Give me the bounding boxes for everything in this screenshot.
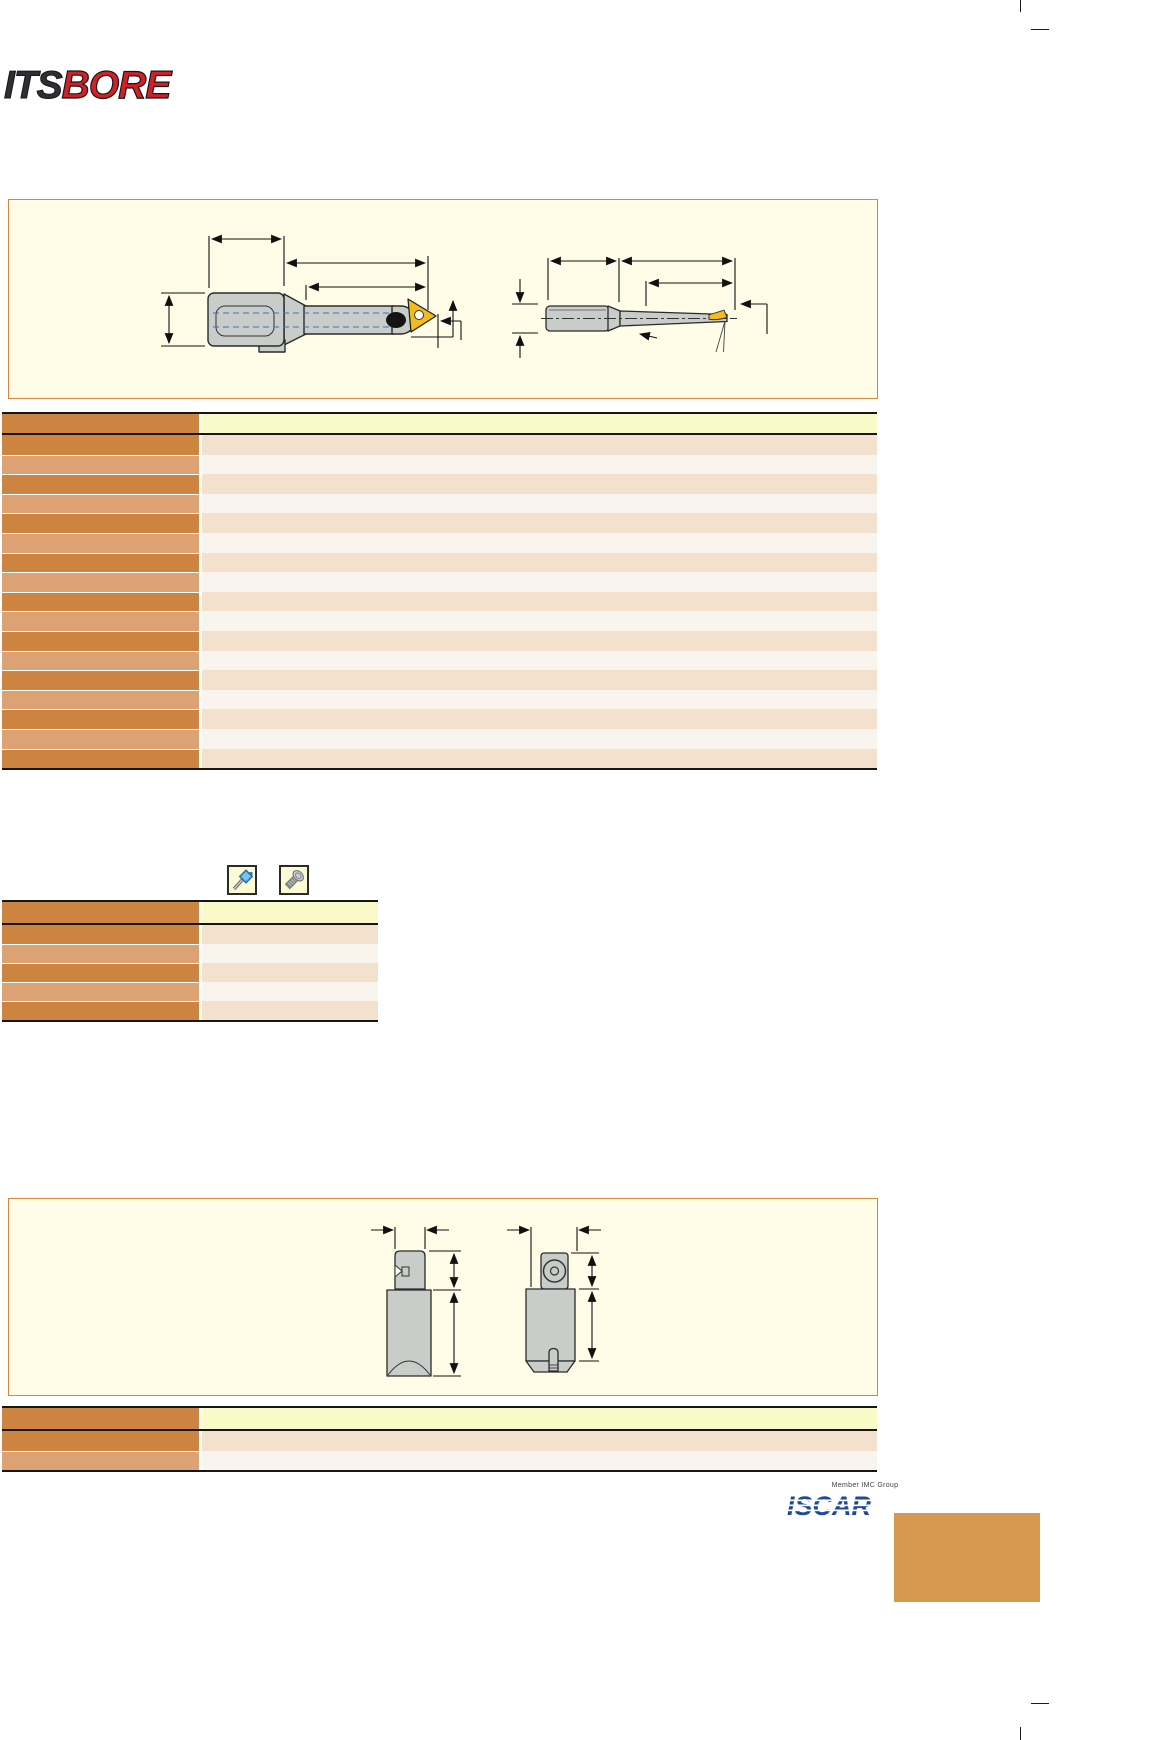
row-label-cell [2, 749, 199, 769]
iscar-logo: ISCAR [786, 1491, 890, 1526]
catalog-page: ITSBORE [0, 0, 1164, 1740]
cartridge-dimension-diagram-box [8, 1198, 878, 1396]
table-row [2, 670, 877, 690]
torx-key-icon [227, 865, 257, 895]
row-label-cell [2, 1451, 199, 1471]
cartridge-pocket-detail [402, 1267, 409, 1276]
header-cells [202, 414, 877, 433]
table-row [2, 709, 877, 729]
table-bottom-rule [2, 768, 877, 770]
row-label-cell [2, 1001, 199, 1020]
row-value-cell [202, 925, 378, 944]
row-label-cell [2, 709, 199, 729]
table-bottom-rule [2, 1020, 378, 1022]
table-row [2, 1431, 877, 1451]
row-value-cell [202, 513, 877, 533]
row-value-cell [202, 572, 877, 592]
row-label-cell [2, 1431, 199, 1451]
row-value-cell [202, 944, 378, 963]
header-label-cell [2, 902, 199, 923]
header-cells [202, 902, 378, 923]
iscar-logo-glyph: ISCAR [786, 1491, 890, 1521]
row-label-cell [2, 631, 199, 651]
table-row [2, 690, 877, 710]
member-imc-group-text: Member IMC Group [813, 1482, 917, 1489]
row-value-cell [202, 670, 877, 690]
crop-mark-bottom-horizontal [1031, 1703, 1049, 1704]
spec-table-1 [2, 412, 877, 770]
row-label-cell [2, 455, 199, 475]
table-row [2, 944, 378, 963]
header-label-cell [2, 1408, 199, 1429]
boring-tools-drawing [9, 200, 875, 396]
table-row [2, 729, 877, 749]
row-value-cell [202, 631, 877, 651]
row-value-cell [202, 494, 877, 514]
logo-text-its: ITS [4, 64, 62, 107]
boring-head-body [208, 293, 415, 352]
table-row [2, 925, 378, 944]
row-value-cell [202, 533, 877, 553]
row-value-cell [202, 982, 378, 1001]
table-row [2, 435, 877, 455]
header-label-cell [2, 414, 199, 433]
crop-mark-bottom-vertical [1020, 1727, 1021, 1740]
logo-text-bore: BORE [62, 64, 171, 107]
row-value-cell [202, 553, 877, 573]
table-row [2, 651, 877, 671]
spec-table-2 [2, 900, 378, 1022]
table-row [2, 474, 877, 494]
row-label-cell [2, 513, 199, 533]
table-row [2, 494, 877, 514]
table-row [2, 1001, 378, 1020]
table-row [2, 631, 877, 651]
row-value-cell [202, 435, 877, 455]
row-value-cell [202, 1431, 877, 1451]
row-label-cell [2, 963, 199, 982]
row-value-cell [202, 1001, 378, 1020]
table-body [2, 435, 877, 768]
table-row [2, 1451, 877, 1471]
table-row [2, 572, 877, 592]
cartridge-drawings [9, 1199, 875, 1393]
row-label-cell [2, 925, 199, 944]
row-label-cell [2, 611, 199, 631]
row-value-cell [202, 1451, 877, 1471]
row-value-cell [202, 611, 877, 631]
table-row [2, 533, 877, 553]
row-label-cell [2, 592, 199, 612]
spec-table-3 [2, 1406, 877, 1472]
torx-key-glyph [229, 867, 255, 893]
row-label-cell [2, 553, 199, 573]
table-header-row [2, 414, 877, 433]
tool-dimension-diagram-box [8, 199, 878, 399]
row-label-cell [2, 670, 199, 690]
row-value-cell [202, 709, 877, 729]
table-row [2, 513, 877, 533]
table-body [2, 925, 378, 1020]
row-label-cell [2, 729, 199, 749]
row-label-cell [2, 982, 199, 1001]
row-value-cell [202, 729, 877, 749]
crop-mark-top-vertical [1020, 0, 1021, 12]
table-row [2, 553, 877, 573]
row-value-cell [202, 592, 877, 612]
header-cells [202, 1408, 877, 1429]
table-row [2, 611, 877, 631]
brazed-tip-insert [709, 310, 727, 319]
insert-screw-hole [415, 311, 424, 320]
row-label-cell [2, 474, 199, 494]
row-label-cell [2, 435, 199, 455]
table-row [2, 963, 378, 982]
crop-mark-top-horizontal [1031, 29, 1049, 30]
row-label-cell [2, 494, 199, 514]
page-corner-accent-block [894, 1513, 1040, 1602]
clamp-screw-head [386, 312, 406, 328]
row-label-cell [2, 572, 199, 592]
table-row [2, 749, 877, 769]
table-row [2, 982, 378, 1001]
row-value-cell [202, 455, 877, 475]
row-value-cell [202, 474, 877, 494]
row-label-cell [2, 533, 199, 553]
tip-angle-lines [716, 321, 725, 352]
table-body [2, 1431, 877, 1470]
clamp-screw-glyph [281, 867, 307, 893]
table-header-row [2, 902, 378, 923]
table-row [2, 592, 877, 612]
table-row [2, 455, 877, 475]
row-label-cell [2, 651, 199, 671]
table-header-row [2, 1408, 877, 1429]
clamp-screw-icon [279, 865, 309, 895]
itsbore-logo: ITSBORE [4, 64, 170, 108]
row-value-cell [202, 749, 877, 769]
row-label-cell [2, 944, 199, 963]
row-value-cell [202, 651, 877, 671]
row-label-cell [2, 690, 199, 710]
table-bottom-rule [2, 1470, 877, 1472]
row-value-cell [202, 690, 877, 710]
row-value-cell [202, 963, 378, 982]
